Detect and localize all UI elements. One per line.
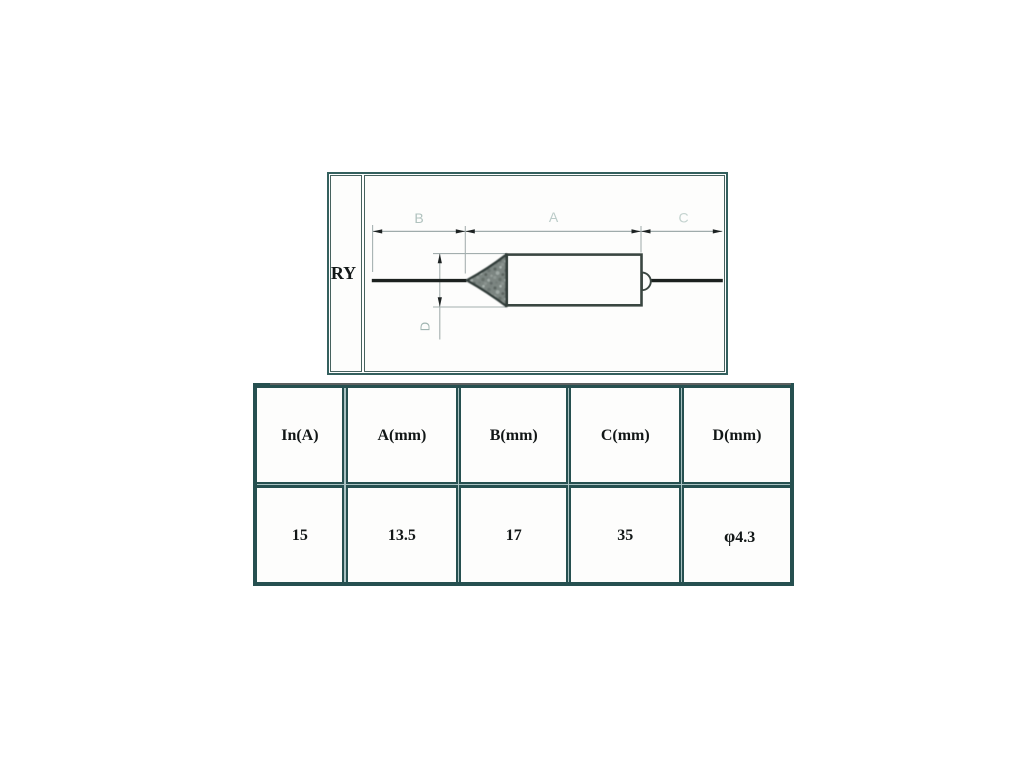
svg-text:D: D [418, 322, 433, 331]
svg-text:A: A [549, 209, 559, 225]
svg-text:B: B [414, 210, 423, 226]
svg-text:C: C [678, 210, 688, 226]
